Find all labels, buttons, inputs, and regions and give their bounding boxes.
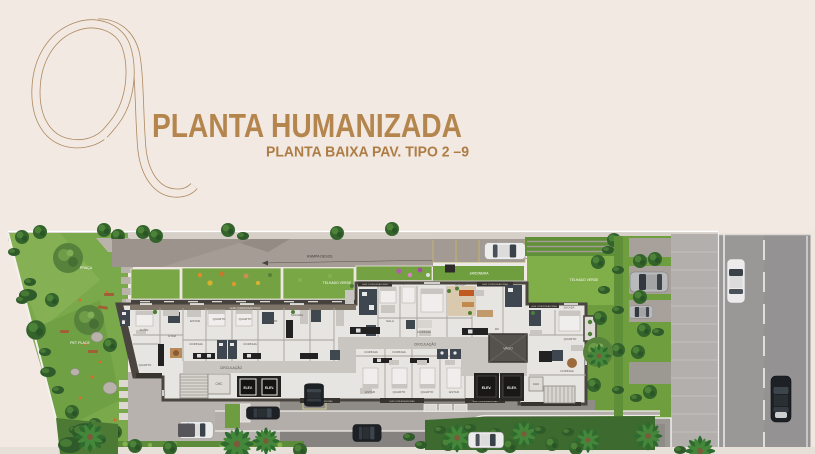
- svg-text:QUARTO: QUARTO: [393, 390, 406, 394]
- svg-text:CHC: CHC: [533, 382, 540, 386]
- svg-text:PRAÇA: PRAÇA: [80, 266, 93, 270]
- svg-text:PLANTA BAIXA PAV. TIPO 2 –9: PLANTA BAIXA PAV. TIPO 2 –9: [266, 144, 469, 161]
- svg-text:QUARTO: QUARTO: [213, 317, 226, 321]
- svg-text:COZINHA: COZINHA: [560, 369, 574, 373]
- svg-text:ESTAR: ESTAR: [190, 319, 201, 323]
- svg-text:LAJE CONDENSADORAS: LAJE CONDENSADORAS: [482, 283, 509, 286]
- svg-text:QUARTO: QUARTO: [564, 337, 577, 341]
- svg-text:ELEV.: ELEV.: [507, 386, 517, 390]
- svg-text:JARDINEIRA: JARDINEIRA: [470, 272, 490, 276]
- svg-text:QUARTO: QUARTO: [421, 390, 434, 394]
- svg-text:COZINHA: COZINHA: [392, 350, 406, 354]
- svg-text:CIRCULAÇÃO: CIRCULAÇÃO: [414, 342, 437, 347]
- svg-text:COZINHA: COZINHA: [189, 342, 203, 346]
- svg-text:SACADA: SACADA: [564, 306, 575, 310]
- svg-text:GTAR: GTAR: [168, 334, 177, 338]
- svg-text:QUARTO: QUARTO: [265, 319, 278, 323]
- svg-text:VAGO: VAGO: [503, 347, 513, 351]
- svg-text:SACADA: SACADA: [291, 313, 303, 317]
- svg-text:PLANTA HUMANIZADA: PLANTA HUMANIZADA: [152, 107, 462, 144]
- svg-text:SUÍTE: SUÍTE: [140, 328, 149, 332]
- svg-text:WC: WC: [495, 327, 499, 331]
- svg-text:TELHADO VERDE: TELHADO VERDE: [570, 278, 599, 282]
- svg-text:QUARTO: QUARTO: [139, 363, 152, 367]
- svg-text:COZINHA: COZINHA: [417, 330, 431, 334]
- svg-text:COZINHA: COZINHA: [364, 350, 378, 354]
- svg-text:LAJE CONDENSADORAS: LAJE CONDENSADORAS: [230, 306, 261, 310]
- svg-text:PET PLACE: PET PLACE: [70, 341, 90, 345]
- svg-text:QUARTO: QUARTO: [402, 282, 413, 286]
- svg-text:ELEV.: ELEV.: [265, 386, 274, 390]
- svg-text:LAJE CONDENSADORAS: LAJE CONDENSADORAS: [531, 305, 558, 308]
- svg-text:TELHADO VERDE: TELHADO VERDE: [323, 281, 352, 285]
- svg-text:CHC: CHC: [216, 382, 224, 386]
- svg-text:ESTAR: ESTAR: [365, 390, 376, 394]
- svg-text:ELEV.: ELEV.: [482, 386, 492, 390]
- svg-text:ESTAR: ESTAR: [449, 390, 460, 394]
- svg-text:COZINHA: COZINHA: [243, 342, 257, 346]
- svg-text:SUB CONDENSADORAS: SUB CONDENSADORAS: [389, 400, 415, 403]
- svg-text:SUÍTE: SUÍTE: [385, 282, 393, 286]
- svg-text:SALA: SALA: [386, 319, 394, 323]
- svg-text:CIRCULAÇÃO: CIRCULAÇÃO: [220, 365, 243, 370]
- svg-text:BWC: BWC: [122, 318, 128, 322]
- svg-text:ELEV.: ELEV.: [244, 386, 253, 390]
- svg-text:RAMPA DESCE: RAMPA DESCE: [307, 255, 333, 259]
- svg-text:SACADA: SACADA: [455, 283, 466, 287]
- svg-text:QUARTO: QUARTO: [239, 317, 252, 321]
